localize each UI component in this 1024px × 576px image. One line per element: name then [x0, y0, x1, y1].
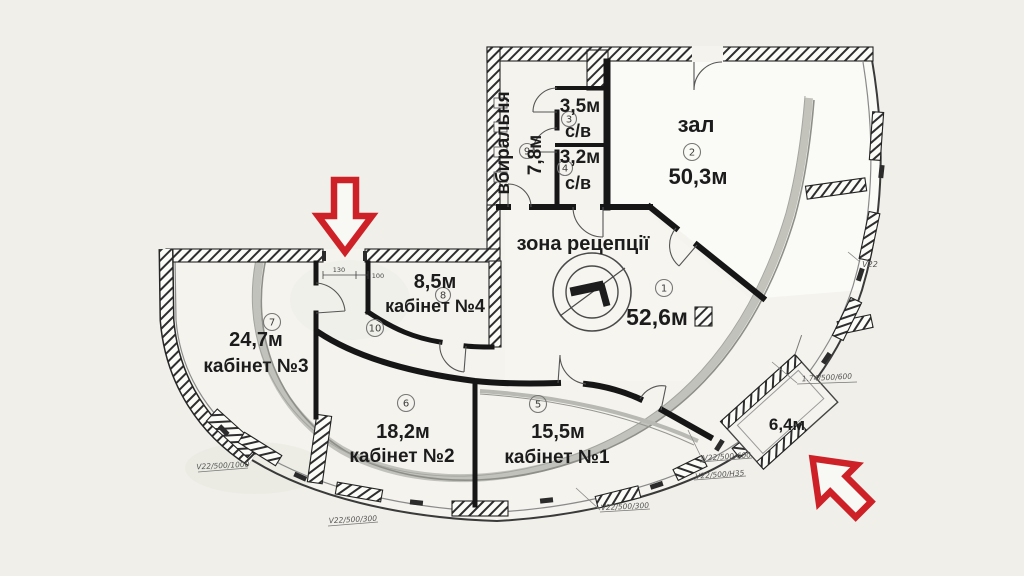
- floor-plan-drawing: 1 2 3 4 5 6 7 8 9 10 зал 50,3м зона реце…: [0, 0, 1024, 576]
- annotation-1: 1.74/500/600: [801, 372, 852, 384]
- arrow-up-left-icon: [793, 439, 882, 528]
- annotation-4: V22/500/300: [600, 501, 649, 513]
- hall-area: 50,3м: [668, 164, 727, 189]
- svg-text:7: 7: [269, 318, 275, 329]
- arrow-down-icon: [318, 180, 372, 252]
- balcony-area: 6,4м: [769, 415, 805, 434]
- svg-text:6: 6: [403, 399, 409, 410]
- office4-name: кабінет №4: [385, 296, 485, 316]
- wc2-area: 3,2м: [560, 147, 600, 168]
- restroom-name: вбиральня: [493, 91, 514, 194]
- office1-name: кабінет №1: [504, 447, 610, 468]
- office1-area: 15,5м: [531, 421, 585, 443]
- office3-area: 24,7м: [229, 329, 283, 351]
- restroom-area: 7,8м: [525, 135, 546, 175]
- dimension-100: 100: [372, 272, 384, 280]
- office2-area: 18,2м: [376, 421, 430, 443]
- svg-text:2: 2: [689, 148, 695, 159]
- reception-name: зона рецепції: [517, 233, 650, 255]
- svg-text:1: 1: [661, 284, 667, 295]
- hall-name: зал: [678, 112, 715, 137]
- office3-name: кабінет №3: [203, 356, 308, 377]
- office4-area: 8,5м: [414, 271, 457, 293]
- svg-text:5: 5: [535, 400, 541, 411]
- annotation-v22: V22: [862, 260, 878, 269]
- dimension-130: 130: [333, 266, 345, 274]
- wc1-area: 3,5м: [560, 96, 600, 117]
- wc1-name: с/в: [565, 121, 591, 141]
- office2-name: кабінет №2: [349, 446, 454, 467]
- floor-plan: 1 2 3 4 5 6 7 8 9 10 зал 50,3м зона реце…: [0, 0, 1024, 576]
- svg-text:10: 10: [369, 324, 382, 335]
- wc2-name: с/в: [565, 173, 591, 193]
- reception-area: 52,6м: [626, 304, 688, 330]
- annotation-6: V22/500/300: [328, 514, 377, 526]
